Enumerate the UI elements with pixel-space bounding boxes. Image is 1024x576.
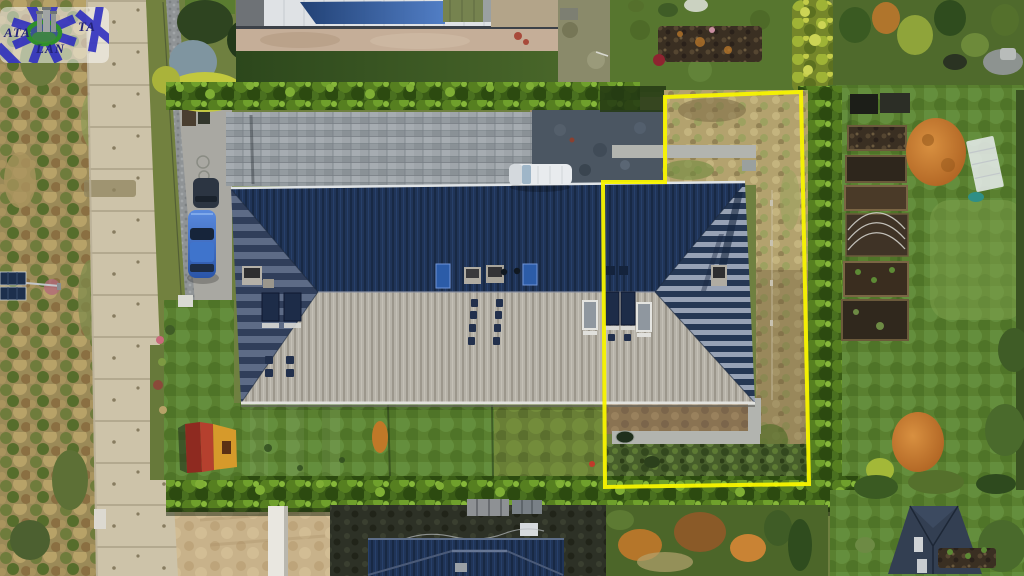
utility-box (178, 295, 193, 307)
main-house (231, 182, 755, 406)
teal-basin (968, 192, 984, 202)
shed-roof (443, 0, 485, 22)
bottom-center-property (330, 499, 608, 576)
compost-bin (880, 93, 910, 113)
playhouse (178, 422, 237, 473)
watermark-text-right: TA (78, 19, 96, 34)
garden-fence-shadow (492, 405, 493, 478)
watermark-text-left: ATA (3, 25, 31, 40)
autumn-tree (906, 118, 966, 186)
aerial-scene: ATA TA LAN (0, 0, 1024, 576)
topright-garden (610, 0, 1024, 94)
white-van (509, 164, 572, 192)
compost-bin (850, 94, 878, 114)
roof-window (605, 292, 619, 325)
top-hedge-row (166, 82, 666, 112)
autumn-tree (892, 412, 944, 472)
roof-window (262, 293, 279, 321)
skylight (523, 264, 537, 285)
roof-window (621, 292, 635, 325)
front-west-yard (153, 295, 237, 480)
playhouse-roof (185, 422, 202, 473)
roof-window (284, 293, 301, 321)
roof-window-white (637, 303, 651, 331)
blue-car (187, 210, 219, 284)
aerial-photo: ATA TA LAN (0, 0, 1024, 576)
bottom-house-roof (368, 538, 564, 576)
watermark-text-bottom: LAN (35, 41, 65, 56)
chimney (917, 559, 927, 573)
waste-bin (182, 110, 196, 126)
playhouse-door (222, 441, 231, 454)
white-post (94, 509, 106, 529)
small-pond (616, 431, 634, 443)
conifer-hedge-column (792, 0, 834, 94)
garden-beds (842, 93, 910, 340)
pole-shadow (251, 115, 253, 184)
right-garden (798, 85, 1024, 490)
dark-car (193, 178, 219, 208)
roof-sky-reflection (300, 1, 445, 24)
hoop-tunnel-bed (846, 214, 908, 256)
skylight (436, 264, 450, 288)
waste-bin (198, 112, 210, 124)
concrete-walkway (612, 145, 759, 158)
red-object (589, 461, 595, 467)
roof-window-white (583, 301, 597, 329)
pallet-stack (512, 500, 542, 514)
orange-shrub (372, 421, 388, 453)
red-bush (653, 54, 665, 66)
chimney (914, 537, 923, 552)
pallet-stack (467, 499, 509, 516)
windshield (190, 228, 214, 240)
